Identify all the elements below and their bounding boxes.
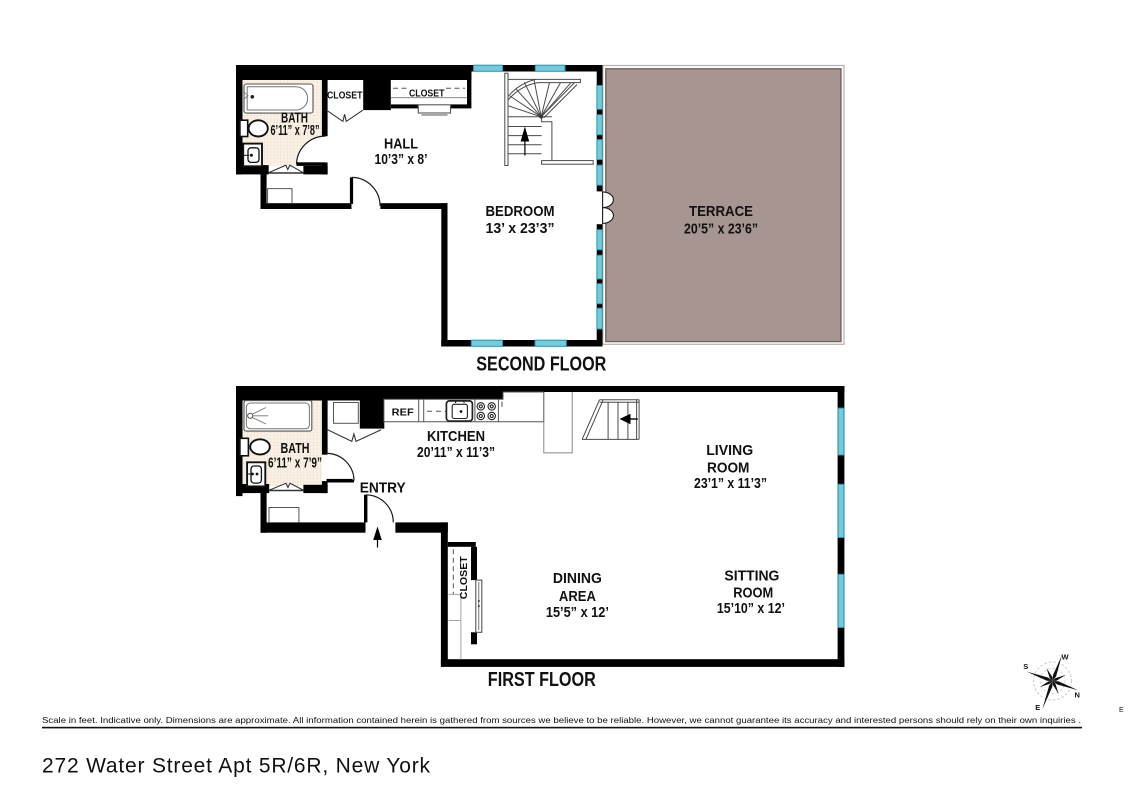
svg-text:15’5” x 12’: 15’5” x 12’: [546, 604, 609, 621]
svg-text:E: E: [1119, 707, 1124, 714]
svg-text:ENTRY: ENTRY: [360, 479, 406, 496]
svg-text:ROOM: ROOM: [733, 585, 773, 602]
svg-text:LIVING: LIVING: [706, 442, 753, 459]
svg-text:23’1” x 11’3”: 23’1” x 11’3”: [694, 475, 767, 492]
svg-text:ROOM: ROOM: [707, 460, 749, 477]
svg-text:W: W: [1061, 653, 1069, 662]
svg-text:CLOSET: CLOSET: [327, 91, 363, 102]
svg-text:6’11” x 7’9”: 6’11” x 7’9”: [268, 455, 322, 472]
svg-text:20’5” x 23’6”: 20’5” x 23’6”: [684, 221, 758, 238]
svg-text:AREA: AREA: [559, 588, 596, 605]
svg-text:SECOND FLOOR: SECOND FLOOR: [476, 354, 606, 376]
svg-text:Scale in feet. Indicative only: Scale in feet. Indicative only. Dimensio…: [42, 716, 1081, 725]
svg-text:FIRST FLOOR: FIRST FLOOR: [488, 669, 596, 691]
svg-text:20’11” x 11’3”: 20’11” x 11’3”: [417, 444, 495, 461]
svg-text:6’11” x 7’8”: 6’11” x 7’8”: [271, 122, 320, 139]
svg-text:N: N: [1074, 691, 1079, 700]
svg-text:E: E: [1035, 703, 1040, 712]
svg-text:13’ x 23’3”: 13’ x 23’3”: [486, 220, 555, 237]
svg-text:CLOSET: CLOSET: [459, 556, 470, 599]
svg-text:SITTING: SITTING: [724, 568, 779, 585]
svg-text:15’10” x 12’: 15’10” x 12’: [717, 600, 785, 617]
svg-text:CLOSET: CLOSET: [409, 88, 445, 99]
svg-text:S: S: [1023, 662, 1028, 671]
svg-text:BEDROOM: BEDROOM: [486, 203, 555, 220]
svg-text:272 Water Street Apt 5R/6R, Ne: 272 Water Street Apt 5R/6R, New York: [42, 755, 431, 778]
svg-text:KITCHEN: KITCHEN: [427, 428, 485, 445]
svg-text:10’3” x 8’: 10’3” x 8’: [375, 151, 428, 168]
svg-text:HALL: HALL: [384, 136, 418, 153]
svg-text:DINING: DINING: [553, 570, 602, 587]
svg-text:TERRACE: TERRACE: [689, 203, 753, 220]
svg-text:REF: REF: [392, 408, 414, 419]
